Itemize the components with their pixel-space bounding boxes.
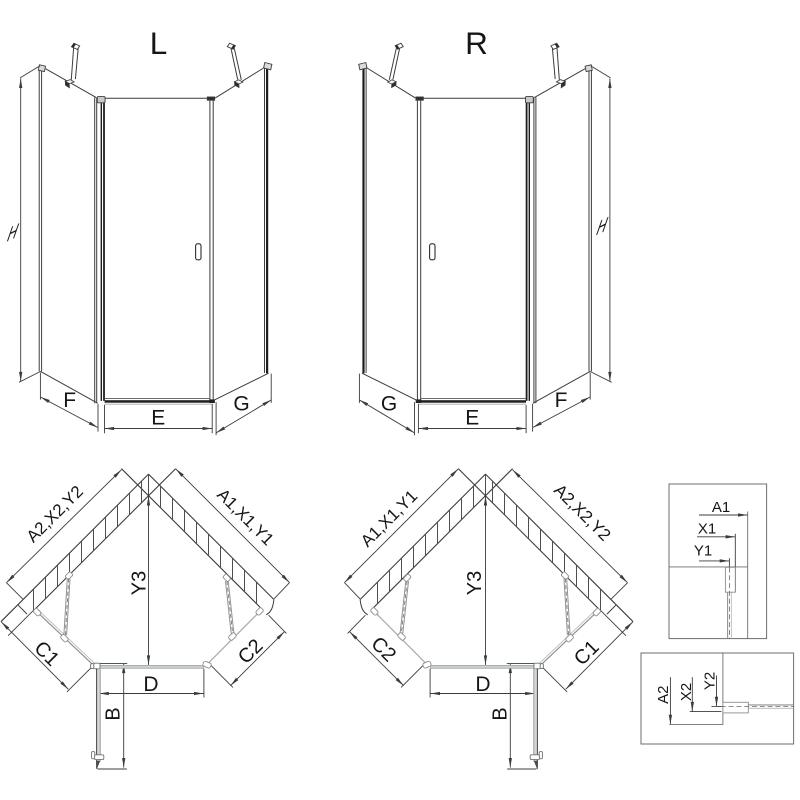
svg-text:F: F xyxy=(63,389,76,412)
svg-text:Y3: Y3 xyxy=(129,571,151,595)
svg-text:E: E xyxy=(151,406,165,429)
svg-text:Y2: Y2 xyxy=(702,672,719,690)
svg-text:B: B xyxy=(103,707,125,720)
svg-text:R: R xyxy=(465,25,488,61)
svg-text:X2: X2 xyxy=(678,683,695,701)
svg-text:E: E xyxy=(465,406,479,429)
svg-text:A2: A2 xyxy=(655,686,672,704)
svg-text:A1: A1 xyxy=(712,499,730,516)
svg-text:F: F xyxy=(555,389,568,412)
svg-text:X1: X1 xyxy=(698,521,716,538)
svg-text:D: D xyxy=(475,673,490,696)
svg-text:B: B xyxy=(490,707,512,720)
svg-text:D: D xyxy=(143,673,158,696)
svg-text:G: G xyxy=(233,393,249,416)
svg-text:Y1: Y1 xyxy=(694,542,712,559)
svg-text:G: G xyxy=(381,393,397,416)
svg-text:Y3: Y3 xyxy=(464,571,486,595)
svg-text:L: L xyxy=(150,25,168,61)
